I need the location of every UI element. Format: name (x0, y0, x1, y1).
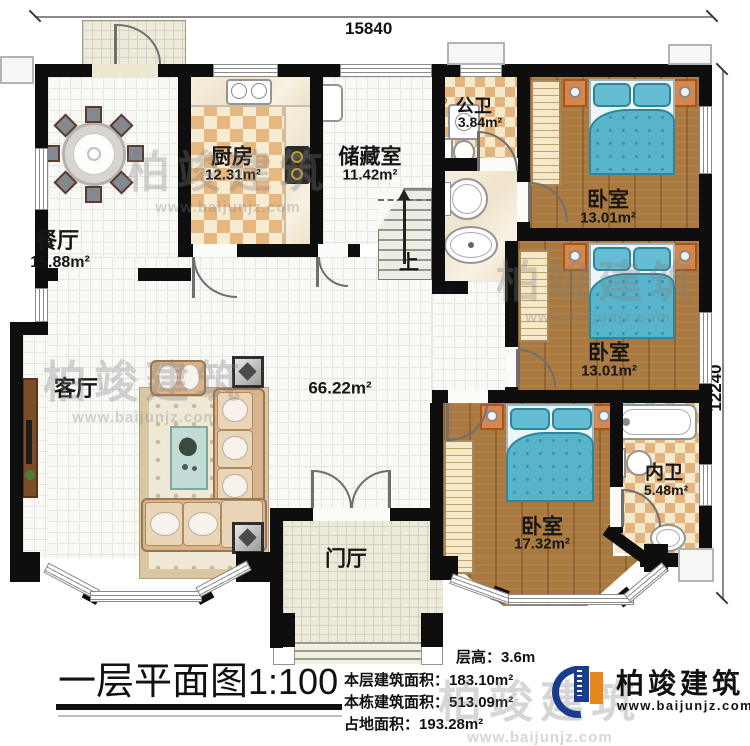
nightstand-lamp (569, 250, 581, 262)
bed-blanket (589, 273, 675, 339)
top-dimension-line (35, 16, 712, 18)
wall-foyer-top (390, 508, 443, 521)
window-sill-box (0, 56, 34, 84)
bed-pillow (633, 83, 671, 107)
room-area-bedroom1: 13.01m² (580, 211, 636, 226)
right-dimension-line (722, 70, 724, 600)
bathtub-inner (621, 409, 691, 435)
window (699, 312, 712, 384)
bay-window (90, 591, 202, 602)
info-label: 层高： (456, 649, 501, 666)
info-label: 本栋建筑面积： (344, 694, 449, 711)
dining-chair (127, 145, 144, 162)
nightstand-lamp (569, 86, 581, 98)
room-area-storage: 11.42m² (342, 168, 397, 183)
room-area-living: 66.22m² (308, 380, 371, 397)
bed-pillow (593, 83, 631, 107)
nightstand-lamp (486, 410, 498, 422)
door-opening (313, 508, 390, 521)
logo-company-name: 柏竣建筑 (616, 662, 744, 702)
plan-title-scale: 1:100 (248, 661, 338, 702)
exterior-wall-left (10, 330, 23, 565)
sofa-pillow (222, 398, 248, 422)
plan-title: 一层平面图1:100 (58, 650, 338, 705)
door-opening (448, 390, 488, 403)
title-underline-thin (58, 715, 342, 717)
sofa-pillow (188, 512, 218, 536)
title-underline (56, 704, 342, 710)
plant (25, 470, 35, 480)
wall-foyer-top (270, 508, 313, 521)
info-line-floor-height: 层高：3.6m (456, 646, 535, 667)
room-label-kitchen: 厨房 (211, 147, 253, 168)
wardrobe (531, 80, 561, 186)
door-opening (318, 244, 348, 257)
window (699, 464, 712, 506)
window-sill-box (447, 42, 505, 65)
info-value: 513.09m² (449, 694, 513, 711)
room-label-bedroom1: 卧室 (587, 190, 629, 211)
room-label-foyer: 门厅 (325, 549, 367, 570)
kitchen-sink-bowl (251, 83, 267, 99)
sofa-pillow (150, 512, 180, 536)
room-label-bedroom2: 卧室 (588, 343, 630, 364)
info-value: 193.28m² (419, 716, 483, 733)
wall-storage-bath (432, 64, 445, 281)
bed-blanket (589, 109, 675, 175)
window (699, 106, 712, 174)
room-area-public-bath: 3.84m² (458, 115, 502, 129)
room-label-bedroom3: 卧室 (521, 517, 563, 538)
logo-website: www.baijunjz.com (617, 698, 750, 713)
logo-building-icon-orange (590, 672, 603, 704)
tv-screen (26, 420, 32, 464)
room-area-kitchen: 12.31m² (205, 168, 261, 183)
floor-plan-page: 15840 12240 (0, 0, 750, 746)
wardrobe (519, 250, 549, 342)
bed-pillow (593, 247, 631, 271)
door-opening (193, 244, 237, 257)
foyer-corner-pillar (273, 613, 295, 647)
info-label: 占地面积： (344, 716, 419, 733)
nightstand-lamp (598, 410, 610, 422)
room-area-inner-bath: 5.48m² (644, 483, 688, 497)
foyer-corner-pillar (421, 613, 443, 647)
logo-building-windows (577, 670, 582, 696)
foyer-floor (283, 508, 443, 648)
plan-title-text: 一层平面图 (58, 661, 248, 703)
dining-table-center (87, 147, 101, 161)
room-area-bedroom3: 17.32m² (514, 537, 570, 552)
wall-kitchen-storage (310, 77, 323, 244)
window-sill-box (678, 548, 714, 582)
stairs-up-label: 上 (399, 253, 419, 273)
wall-bedroom1-bottom (517, 228, 712, 241)
top-dimension-label: 15840 (345, 19, 392, 39)
room-label-dining: 餐厅 (35, 230, 79, 252)
room-label-inner-bath: 内卫 (645, 464, 683, 483)
window (213, 64, 278, 77)
info-value: 3.6m (501, 649, 535, 666)
bathtub-drain (622, 418, 630, 426)
nightstand-lamp (679, 250, 691, 262)
nightstand-lamp (679, 86, 691, 98)
kitchen-sink-bowl (231, 83, 247, 99)
info-line-building-area: 本栋建筑面积：513.09m² (344, 691, 513, 712)
window (35, 288, 48, 322)
bay-window (508, 594, 634, 605)
window (460, 64, 502, 77)
sofa-pillow (222, 436, 248, 460)
window-sill-box (668, 44, 712, 65)
armchair-pillow (158, 364, 178, 390)
foyer-step-corner (421, 645, 443, 665)
door-opening (92, 64, 158, 77)
bed-pillow (552, 408, 592, 430)
wall-stub-hallway (432, 281, 468, 294)
wardrobe (444, 440, 474, 574)
window (35, 148, 48, 210)
stair-arrow-head (398, 189, 410, 200)
bed-pillow (633, 247, 671, 271)
stove-burner (291, 168, 303, 180)
info-label: 本层建筑面积： (344, 672, 449, 689)
info-line-footprint: 占地面积：193.28m² (344, 713, 483, 734)
room-area-dining: 15.88m² (30, 255, 90, 271)
wall-dining-kitchen (178, 77, 191, 244)
window (340, 64, 432, 77)
room-label-living: 客厅 (54, 378, 98, 400)
wall-stub-dining (138, 268, 191, 281)
bay-corner (10, 552, 40, 582)
drain-dot (468, 242, 474, 248)
sofa-pillow (222, 474, 248, 498)
coffee-table-decor (192, 466, 197, 471)
stove-burner (291, 151, 303, 163)
bed-blanket (506, 432, 594, 502)
room-label-storage: 储藏室 (339, 147, 402, 168)
info-line-floor-area: 本层建筑面积：183.10m² (344, 669, 513, 690)
dining-chair (85, 186, 102, 203)
armchair-pillow (180, 364, 200, 390)
coffee-table-decor (182, 464, 188, 470)
water-heater-inner (452, 184, 482, 214)
wall-bedroom3-left (430, 403, 443, 577)
room-label-public-bath: 公卫 (456, 97, 492, 115)
room-area-bedroom2: 13.01m² (581, 364, 637, 379)
dining-chair (85, 106, 102, 123)
bed-pillow (510, 408, 550, 430)
company-logo: 柏竣建筑 www.baijunjz.com (548, 658, 748, 730)
coffee-table (170, 426, 208, 490)
info-value: 183.10m² (449, 672, 513, 689)
